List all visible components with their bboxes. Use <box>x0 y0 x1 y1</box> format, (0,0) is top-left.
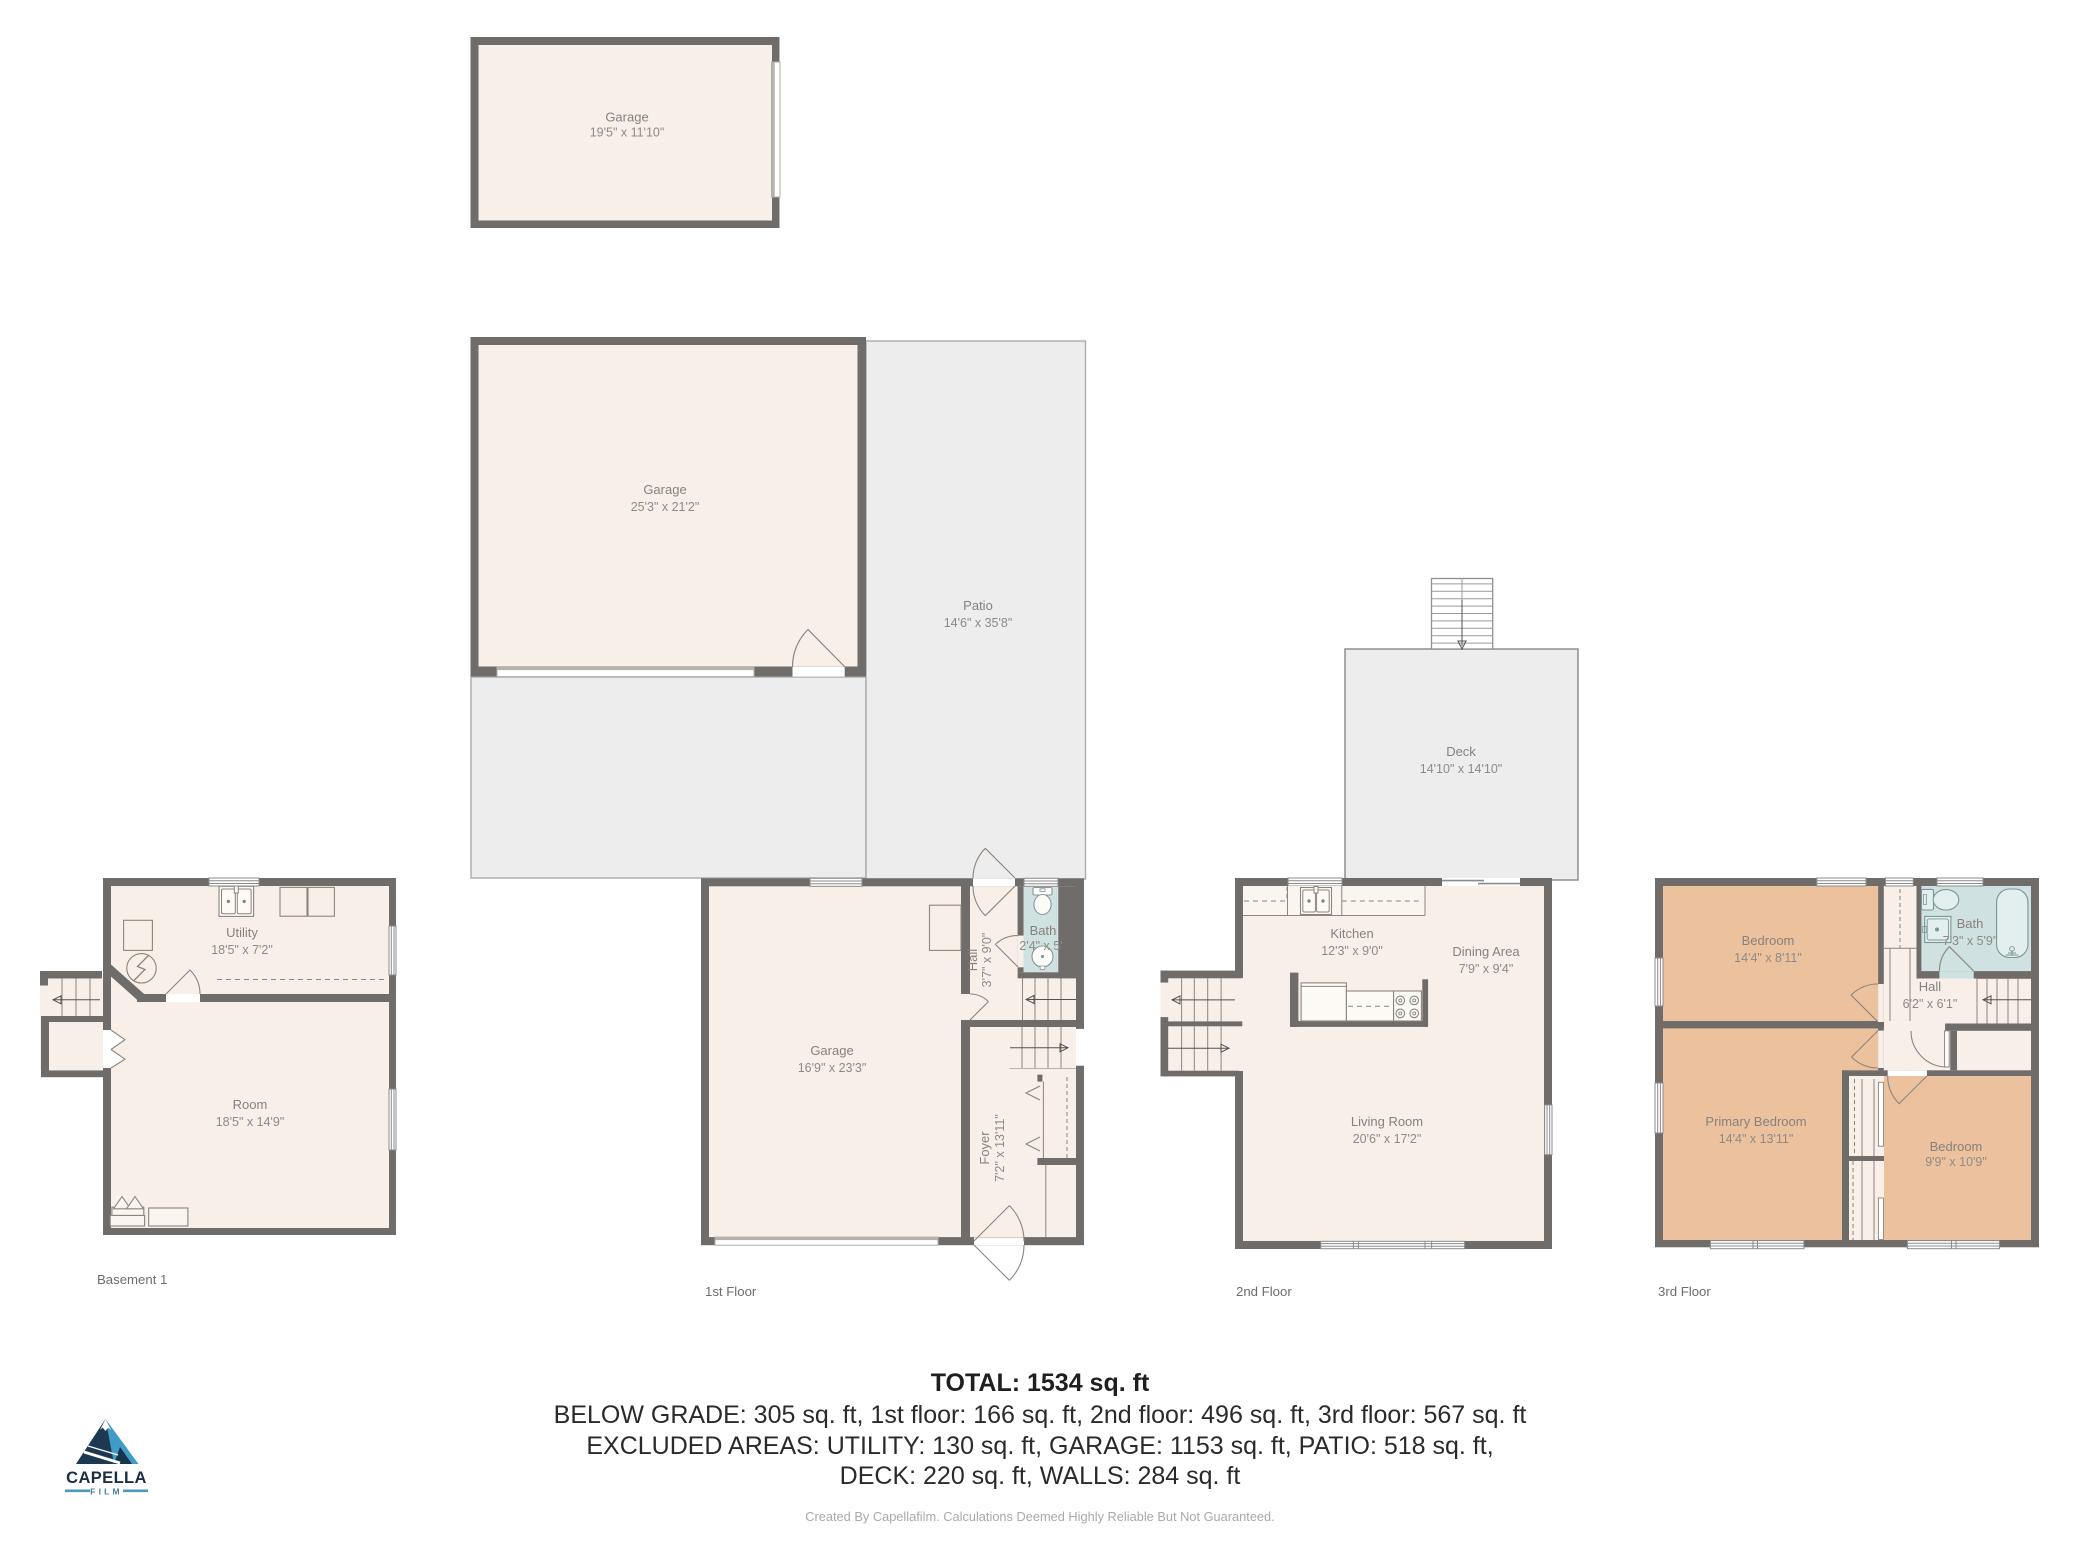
svg-text:3rd Floor: 3rd Floor <box>1658 1284 1711 1299</box>
svg-text:9'9" x 10'9": 9'9" x 10'9" <box>1925 1155 1987 1169</box>
svg-text:25'3" x 21'2": 25'3" x 21'2" <box>631 500 700 514</box>
svg-text:Hall: Hall <box>965 949 980 972</box>
svg-text:FILM: FILM <box>90 1487 123 1497</box>
svg-text:EXCLUDED AREAS: UTILITY: 130 s: EXCLUDED AREAS: UTILITY: 130 sq. ft, GAR… <box>586 1432 1493 1460</box>
svg-text:19'5" x 11'10": 19'5" x 11'10" <box>590 126 665 140</box>
svg-text:2nd Floor: 2nd Floor <box>1236 1284 1292 1299</box>
svg-text:18'5" x 7'2": 18'5" x 7'2" <box>211 943 273 957</box>
svg-text:Dining Area: Dining Area <box>1452 944 1520 959</box>
svg-text:DECK: 220 sq. ft, WALLS: 284 s: DECK: 220 sq. ft, WALLS: 284 sq. ft <box>840 1462 1241 1490</box>
svg-text:Bath: Bath <box>1030 923 1057 938</box>
svg-text:BELOW GRADE: 305 sq. ft, 1st f: BELOW GRADE: 305 sq. ft, 1st floor: 166 … <box>554 1401 1527 1429</box>
svg-text:16'9" x 23'3": 16'9" x 23'3" <box>798 1061 867 1075</box>
svg-text:Hall: Hall <box>1919 979 1942 994</box>
svg-text:3'7" x 9'0": 3'7" x 9'0" <box>980 933 994 988</box>
svg-text:14'4" x 13'11": 14'4" x 13'11" <box>1719 1132 1794 1146</box>
svg-text:CAPELLA: CAPELLA <box>66 1469 147 1487</box>
svg-text:TOTAL: 1534 sq. ft: TOTAL: 1534 sq. ft <box>931 1369 1150 1397</box>
svg-text:14'6" x 35'8": 14'6" x 35'8" <box>944 616 1013 630</box>
svg-text:Bath: Bath <box>1957 916 1984 931</box>
svg-text:Primary Bedroom: Primary Bedroom <box>1705 1114 1806 1129</box>
svg-text:1st Floor: 1st Floor <box>705 1284 757 1299</box>
svg-text:Deck: Deck <box>1446 744 1476 759</box>
svg-text:Garage: Garage <box>810 1043 853 1058</box>
svg-text:7'9" x 9'4": 7'9" x 9'4" <box>1459 962 1514 976</box>
svg-text:Bedroom: Bedroom <box>1930 1139 1983 1154</box>
svg-text:18'5" x 14'9": 18'5" x 14'9" <box>216 1115 285 1129</box>
svg-text:6'2" x 6'1": 6'2" x 6'1" <box>1903 997 1958 1011</box>
svg-text:Garage: Garage <box>643 482 686 497</box>
svg-text:Foyer: Foyer <box>977 1131 992 1165</box>
svg-text:Utility: Utility <box>226 925 258 940</box>
svg-text:Room: Room <box>233 1097 268 1112</box>
svg-text:Patio: Patio <box>963 598 993 613</box>
svg-text:20'6" x 17'2": 20'6" x 17'2" <box>1353 1132 1422 1146</box>
svg-text:12'3" x 9'0": 12'3" x 9'0" <box>1321 944 1383 958</box>
svg-text:14'10" x 14'10": 14'10" x 14'10" <box>1420 762 1502 776</box>
svg-text:7'3" x 5'9": 7'3" x 5'9" <box>1943 934 1998 948</box>
svg-text:Kitchen: Kitchen <box>1330 926 1373 941</box>
svg-text:14'4" x 8'11": 14'4" x 8'11" <box>1734 951 1802 965</box>
svg-text:Garage: Garage <box>605 110 648 125</box>
svg-text:Basement 1: Basement 1 <box>97 1272 167 1287</box>
svg-text:Bedroom: Bedroom <box>1742 933 1795 948</box>
svg-text:2'4" x 5': 2'4" x 5' <box>1019 939 1062 953</box>
svg-text:Living Room: Living Room <box>1351 1114 1423 1129</box>
svg-text:Created By Capellafilm. Calcul: Created By Capellafilm. Calculations Dee… <box>805 1509 1274 1524</box>
svg-text:7'2" x 13'11": 7'2" x 13'11" <box>993 1114 1007 1182</box>
